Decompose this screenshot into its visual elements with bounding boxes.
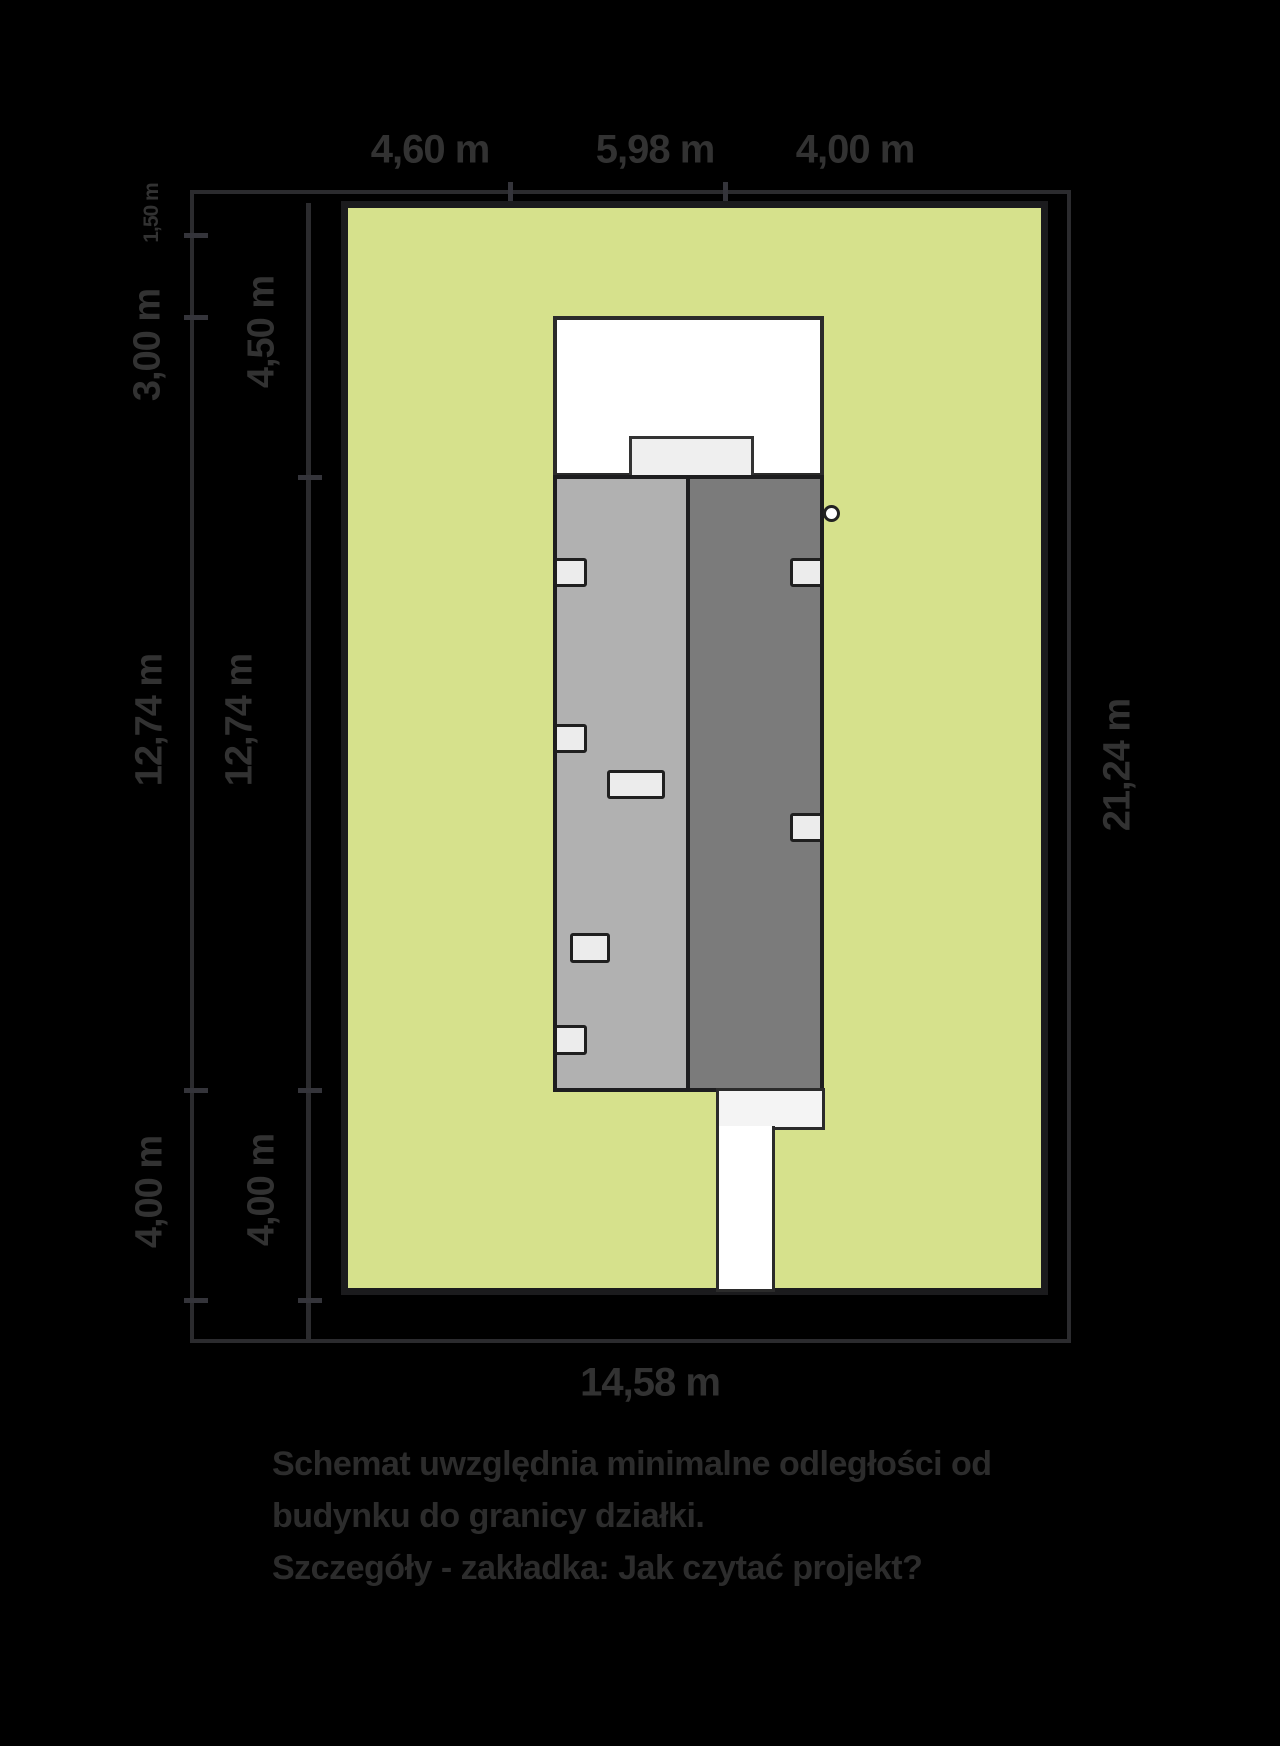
dim-tick — [184, 315, 208, 320]
dim-tick — [184, 233, 208, 238]
dim-label-left-inner-2: 12,74 m — [219, 654, 262, 786]
dim-label-left-outer-2: 3,00 m — [127, 289, 170, 401]
caption-text: Schemat uwzględnia minimalne odległości … — [272, 1438, 1032, 1594]
entry-step — [629, 436, 754, 478]
window-marker — [790, 558, 823, 587]
site-plan-diagram: 4,60 m 5,98 m 4,00 m 1,50 m 3,00 m 12,74… — [0, 0, 1280, 1746]
caption-line-3: Szczegóły - zakładka: Jak czytać projekt… — [272, 1542, 1032, 1594]
inner-dimension-line — [306, 203, 311, 1343]
window-marker — [607, 770, 665, 799]
dim-label-left-outer-1: 1,50 m — [140, 183, 164, 242]
dim-label-right-total: 21,24 m — [1097, 699, 1140, 831]
dim-label-top-right: 4,00 m — [796, 128, 915, 173]
dim-tick — [298, 1298, 322, 1303]
window-marker — [554, 724, 587, 753]
dim-label-left-outer-4: 4,00 m — [129, 1136, 172, 1248]
caption-line-2: budynku do granicy działki. — [272, 1490, 1032, 1542]
dim-tick — [184, 1298, 208, 1303]
dim-label-top-left: 4,60 m — [371, 128, 490, 173]
caption-line-1: Schemat uwzględnia minimalne odległości … — [272, 1438, 1032, 1490]
window-marker — [570, 933, 610, 963]
rear-terrace — [716, 1088, 825, 1130]
dim-label-left-outer-3: 12,74 m — [129, 654, 172, 786]
dim-label-bottom-total: 14,58 m — [580, 1361, 720, 1406]
dim-tick — [184, 1088, 208, 1093]
dim-label-left-inner-3: 4,00 m — [241, 1134, 284, 1246]
dim-label-top-center: 5,98 m — [596, 128, 715, 173]
window-marker — [554, 558, 587, 587]
survey-point-marker — [823, 505, 840, 522]
dim-tick — [298, 475, 322, 480]
window-marker — [790, 813, 823, 842]
window-marker — [554, 1025, 587, 1055]
dim-tick — [298, 1088, 322, 1093]
dim-label-left-inner-1: 4,50 m — [241, 276, 284, 388]
walkway — [716, 1126, 775, 1292]
